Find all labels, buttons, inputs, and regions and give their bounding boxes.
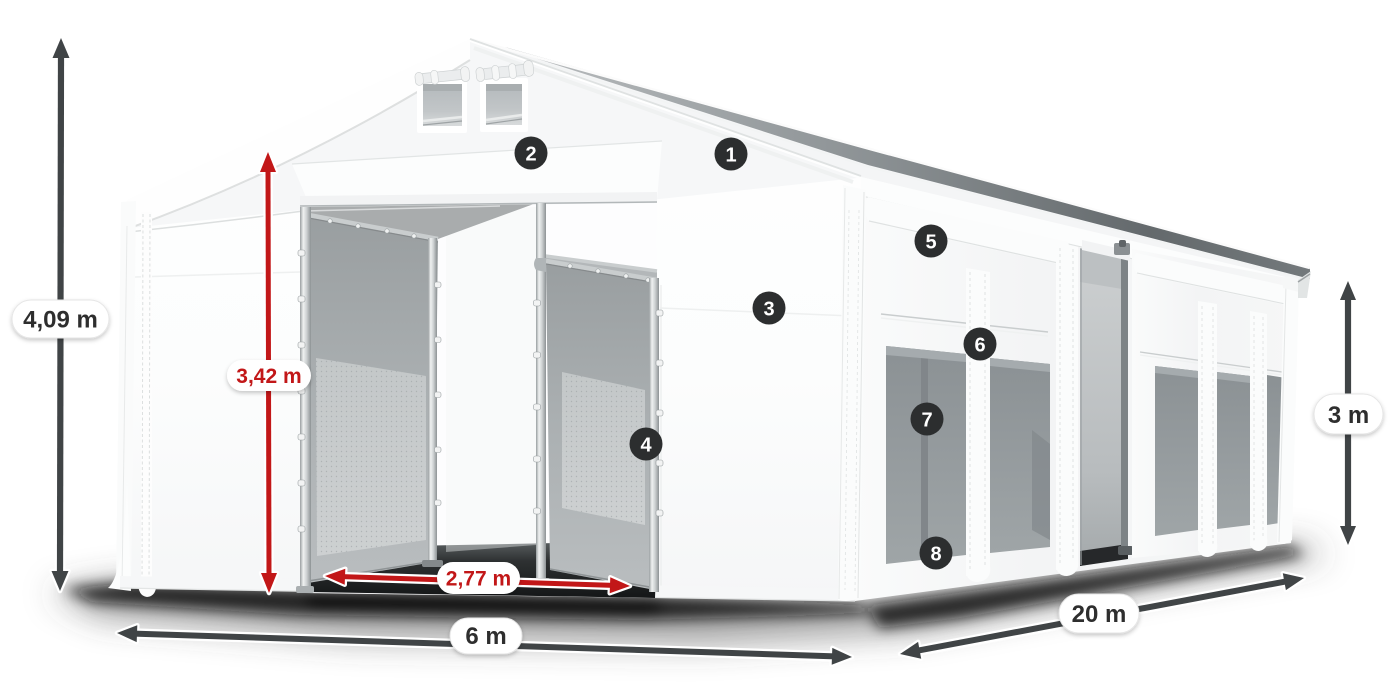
svg-text:6 m: 6 m	[465, 623, 506, 650]
svg-text:2,77 m: 2,77 m	[446, 568, 511, 591]
svg-text:3,42 m: 3,42 m	[236, 365, 301, 388]
svg-text:20 m: 20 m	[1072, 601, 1127, 628]
svg-text:7: 7	[921, 410, 932, 432]
svg-text:8: 8	[930, 544, 941, 566]
svg-text:1: 1	[725, 145, 736, 167]
svg-text:3 m: 3 m	[1328, 402, 1369, 429]
svg-text:2: 2	[525, 144, 536, 166]
svg-text:4,09 m: 4,09 m	[23, 307, 98, 334]
svg-text:6: 6	[974, 335, 985, 357]
svg-text:5: 5	[925, 232, 936, 254]
svg-text:4: 4	[640, 435, 652, 457]
svg-text:3: 3	[763, 299, 774, 321]
